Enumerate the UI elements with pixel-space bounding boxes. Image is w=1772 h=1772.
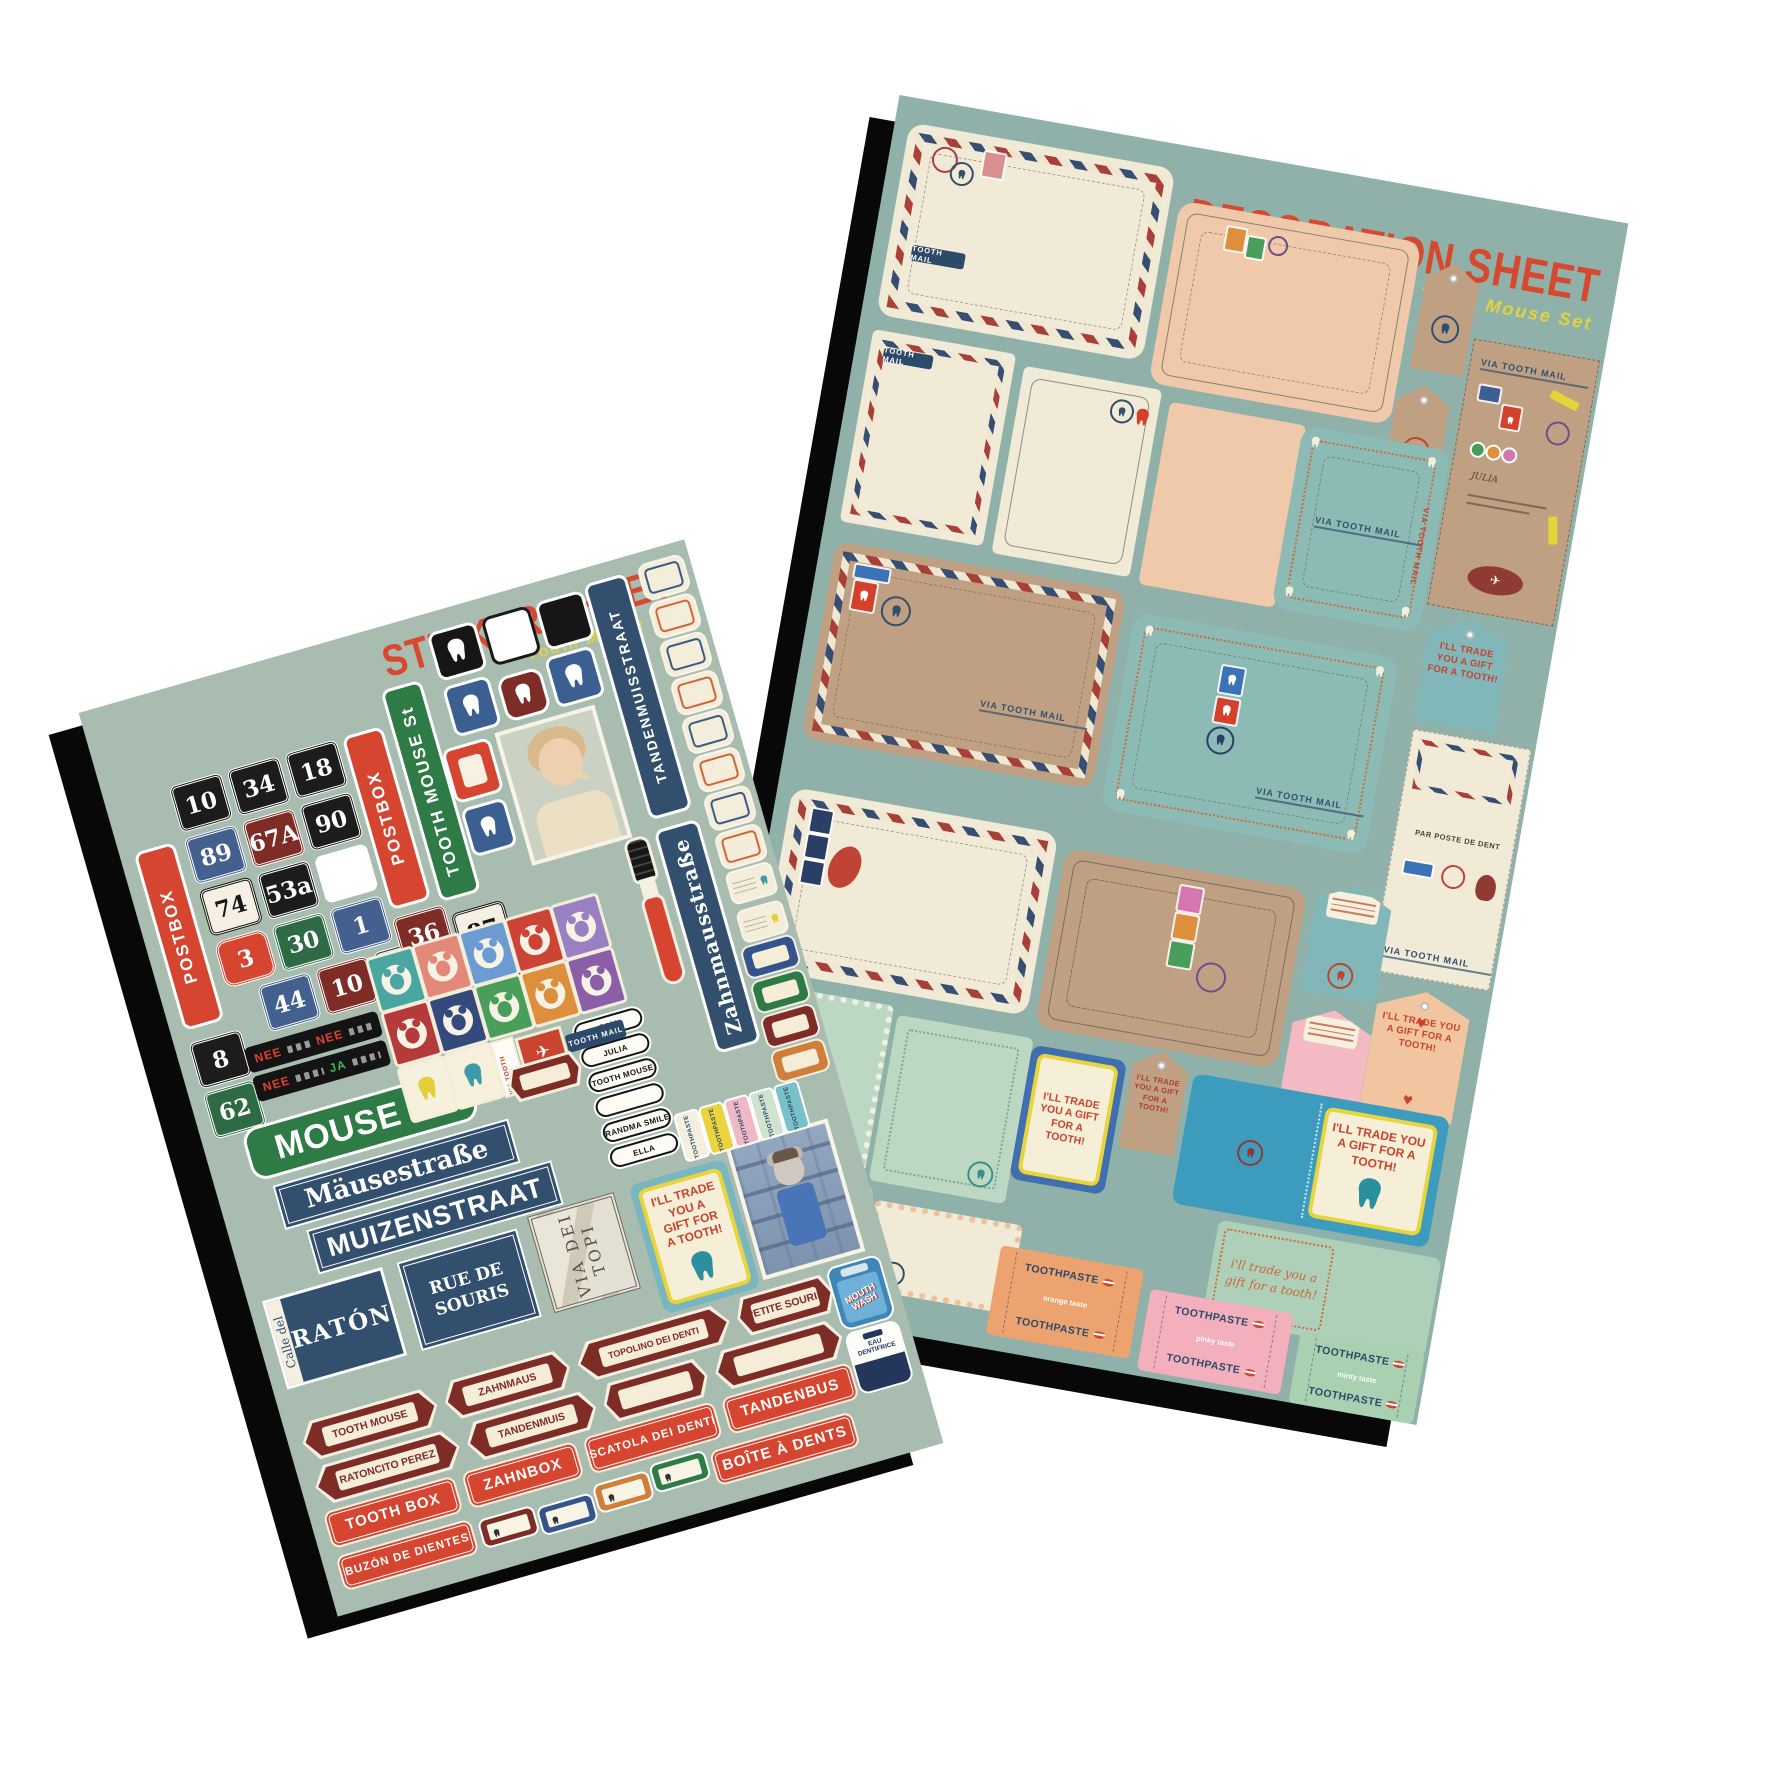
house-number-label: 67A [246, 818, 301, 858]
mouse-face [424, 948, 461, 985]
house-number-sticker: 30 [271, 911, 336, 972]
mouthwash-label: MOUTH WASH [836, 1271, 889, 1324]
tooth-corner-mark [1397, 605, 1413, 621]
dash-decoration [351, 1051, 381, 1066]
letter-paper [991, 366, 1162, 577]
square-stamp [1177, 886, 1203, 913]
lips-icon [1393, 1360, 1406, 1369]
house-number-sticker: 34 [226, 756, 291, 817]
dash-decoration [286, 1040, 311, 1053]
street-sign-via-dei-topi: VIA DEI TOPI [527, 1192, 641, 1313]
square-stamp [982, 152, 1006, 179]
house-number-sticker: 3 [213, 928, 278, 989]
house-number-sticker: 53a [256, 860, 321, 921]
house-number-label: 44 [270, 985, 308, 1020]
house-number-sticker: 74 [198, 876, 263, 937]
tooth-icon [1307, 434, 1323, 450]
heart-icon [1402, 1094, 1414, 1106]
tooth-corner-mark [1424, 455, 1440, 471]
tooth-corner-mark [1112, 787, 1128, 803]
vertical-sign-label: POSTBOX [364, 769, 410, 868]
oval-tag-window: TOOTH MOUSE [321, 1402, 419, 1447]
baby-dress [532, 786, 622, 861]
color-dot-sticker [1502, 448, 1516, 462]
toothpaste-flavor: minty taste [1316, 1366, 1398, 1389]
house-number-label: 74 [212, 889, 250, 924]
house-number-sticker: 18 [284, 739, 349, 800]
tooth-square-sticker [495, 666, 552, 723]
red-label-text: ZAHNBOX [482, 1456, 564, 1494]
address-name: JULIA [1470, 471, 1499, 486]
tooth-icon [409, 1071, 446, 1108]
tooth-icon [455, 1058, 492, 1095]
product-mockup-canvas: STICKER SHEET Tooth Mouse Set POSTBOXPOS… [0, 0, 1772, 1772]
tooth-icon [439, 633, 476, 670]
yellow-label-chip [1549, 390, 1580, 412]
oval-tag-window: PETITE SOURIS [750, 1287, 820, 1324]
flavor-label: minty taste [1336, 1370, 1377, 1386]
tooth-corner-mark [1372, 664, 1388, 680]
house-number-label: 1 [350, 910, 373, 940]
street-sign-rue-de-souris: RUE DE SOURIS [396, 1228, 542, 1351]
name-plate-label: JULIA [602, 1042, 629, 1058]
label-lines [732, 876, 757, 894]
toothpaste-row: TOOTHPASTE [1169, 1303, 1271, 1332]
round-postmark-stamp [1429, 313, 1461, 345]
house-number-label: 10 [182, 785, 220, 820]
kraft-envelope-template [1035, 847, 1308, 1069]
tooth-icon [757, 872, 772, 887]
tooth-icon [680, 1244, 727, 1291]
blank-label-sticker [704, 786, 756, 831]
strip-right-label: NEE [314, 1027, 344, 1048]
trade-card-text: I'LL TRADE YOU A GIFT FOR A TOOTH! [1033, 1090, 1103, 1150]
oval-tag-window: TANDENMUIS [485, 1404, 579, 1448]
toothpaste-label: TOOTHPASTE [1174, 1304, 1250, 1329]
mint-dotted-paper [869, 1015, 1034, 1204]
trade-tag-text: I'LL TRADE YOU A GIFT FOR A TOOTH! [1421, 638, 1508, 687]
tooth-icon [1345, 1172, 1391, 1218]
lips-icon [1102, 1278, 1115, 1287]
house-number-sticker: 10 [169, 772, 234, 833]
trade-tag-text: I'LL TRADE YOU A GIFT FOR A TOOTH! [1125, 1071, 1187, 1118]
sticker-sheet: STICKER SHEET Tooth Mouse Set POSTBOXPOS… [79, 539, 944, 1616]
tooth-corner-mark [1307, 434, 1323, 450]
round-postmark-stamp [1439, 863, 1467, 891]
square-stamp [1168, 941, 1194, 968]
round-postmark-stamp [1325, 961, 1355, 991]
teal-trade-tag: I'LL TRADE YOU A GIFT FOR A TOOTH! [1413, 613, 1513, 734]
toothpaste-label: TOOTHPASTE [1307, 1385, 1383, 1410]
mouse-face [563, 908, 600, 945]
oval-tag-label: TANDENMUIS [497, 1411, 566, 1440]
tooth-icon [473, 811, 505, 843]
toothpaste-strip-label: TOOTHPASTE [708, 1107, 726, 1151]
square-stamp [1403, 860, 1433, 877]
mouse-face [516, 921, 553, 958]
tooth-icon [455, 689, 490, 724]
trade-card-inner: I'LL TRADE YOU A GIFT FOR A TOOTH! [1017, 1053, 1119, 1187]
toothpaste-label: TOOTHPASTE [1315, 1344, 1391, 1369]
cream-box-template: PAR POSTE DE DENTVIA TOOTH MAIL [1371, 729, 1532, 991]
red-label-text: TOOTH BOX [344, 1491, 442, 1533]
lined-label-sticker [737, 901, 788, 942]
house-number-sticker: 89 [183, 824, 248, 885]
strip-right-label: JA [328, 1057, 349, 1075]
square-stamp [1172, 914, 1198, 941]
toothpaste-row: TOOTHPASTE [1319, 1344, 1402, 1370]
blank-label-sticker [693, 747, 745, 792]
house-number-label: 90 [312, 804, 350, 839]
colored-tag-window [771, 1014, 809, 1039]
lined-label-sticker [726, 863, 777, 904]
flavor-label: pinky taste [1195, 1334, 1235, 1350]
house-number-label: 8 [209, 1044, 232, 1074]
blank-label-sticker [682, 709, 734, 754]
feather-stamp [1474, 873, 1498, 902]
mini-tag-window [602, 1479, 646, 1505]
blank-label-sticker [715, 824, 767, 869]
mouse-apron [775, 1181, 828, 1247]
tooth-icon [549, 1512, 561, 1524]
tooth-icon [887, 603, 904, 620]
toothpaste-strip-label: TOOTHPASTE [733, 1100, 751, 1144]
square-stamp [1225, 227, 1247, 252]
tooth-corner-mark [1343, 828, 1359, 844]
par-poste-text: PAR POSTE DE DENT [1405, 827, 1508, 868]
toothpaste-strip-label: TOOTHPASTE [783, 1086, 801, 1130]
par-poste-label: PAR POSTE DE DENT [1414, 828, 1501, 852]
tooth-icon [1112, 787, 1128, 803]
street-sign-raton: Calle delRATÓN [262, 1267, 408, 1390]
mouse-face [486, 989, 523, 1026]
house-number-label: 62 [216, 1092, 254, 1127]
toothpaste-label: TOOTHPASTE [1015, 1315, 1091, 1340]
color-dot-sticker [1487, 446, 1501, 460]
label-lines [743, 915, 768, 933]
oval-tag-body [507, 1053, 583, 1101]
red-tooth-sticker [1129, 405, 1154, 430]
house-number-label: 3 [234, 943, 257, 973]
tooth-icon [508, 679, 540, 711]
via-tooth-mail-stamp: VIA TOOTH MAIL [1382, 944, 1493, 977]
decoration-sheet-shadow-wrap: DECORATION SHEET Tooth Mouse Set TOOTH M… [788, 150, 1528, 1370]
mini-tag-window [658, 1459, 702, 1485]
round-postmark-stamp [1235, 1138, 1265, 1168]
toothpaste-row: TOOTHPASTE [1160, 1351, 1262, 1380]
tooth-icon [1437, 321, 1453, 337]
house-number-label: 53a [262, 871, 315, 910]
toothpaste-flavor: pinky taste [1165, 1329, 1266, 1355]
tooth-icon [1129, 405, 1154, 430]
kraft-box-template: VIA TOOTH MAILJULIA✈ [1427, 338, 1600, 626]
mouthwash-text: MOUTH WASH [839, 1279, 885, 1316]
lips-icon [1243, 1368, 1256, 1377]
teal-envelope-template-large: VIA TOOTH MAIL [1101, 612, 1400, 855]
tooth-icon [1224, 673, 1240, 689]
tooth-icon [662, 1469, 674, 1481]
house-number-sticker: 67A [241, 808, 306, 869]
square-stamp [1219, 666, 1245, 695]
square-stamp [1246, 237, 1265, 259]
tooth-icon [1372, 664, 1388, 680]
oval-tag-window: ZAHNMAUS [462, 1363, 553, 1406]
trade-tag-text: I'LL TRADE YOU A GIFT FOR A TOOTH! [1370, 1009, 1469, 1060]
house-number-label: 34 [240, 769, 278, 804]
tooth-icon [1333, 968, 1348, 983]
peach-trade-tag: I'LL TRADE YOU A GIFT FOR A TOOTH! [1359, 984, 1473, 1124]
dash-decoration [348, 1022, 373, 1035]
house-number-label: 89 [197, 837, 235, 872]
oval-tag-body: TOPOLINO DEI DENTI [576, 1306, 731, 1381]
mouse-face [532, 975, 569, 1012]
oval-tag-label: ZAHNMAUS [477, 1372, 538, 1399]
mini-tooth-tag-sticker [594, 1472, 653, 1512]
tooth-icon [1424, 455, 1440, 471]
mouthwash-bottle-sticker: MOUTH WASH [827, 1256, 894, 1330]
toothpaste-label: TOOTHPASTE [1024, 1262, 1100, 1287]
house-number-label: 10 [328, 968, 366, 1003]
mini-tooth-tag-sticker [479, 1507, 538, 1547]
tooth-icon [1281, 584, 1297, 600]
mouse-face [578, 962, 615, 999]
teal-envelope-template: VIA TOOTH MAILVIA TOOTH MAIL [1271, 425, 1451, 633]
house-number-label: 30 [284, 925, 322, 960]
oval-tag-window [732, 1333, 824, 1376]
toothpaste-strip-label: TOOTHPASTE [758, 1093, 776, 1137]
tooth-icon [490, 1524, 502, 1536]
tooth-icon [955, 167, 969, 181]
red-label-text: TANDENBUS [739, 1377, 841, 1420]
tag-label-window [1302, 1014, 1360, 1050]
trade-card-lower-text: i'll trade you a gift for a tooth! [1217, 1253, 1327, 1306]
toothpaste-label: TOOTHPASTE [1165, 1352, 1241, 1377]
tooth-square-sticker [442, 675, 502, 738]
oval-tag-label: RATONCITO PEREZ [338, 1448, 436, 1485]
strip-left-label: NEE [253, 1045, 283, 1066]
colored-tag-window [781, 1048, 819, 1073]
street-sign-label: VIA DEI TOPI [553, 1203, 615, 1302]
kraft-airmail-envelope-template: VIA TOOTH MAIL [801, 541, 1126, 789]
house-number-sticker: 44 [257, 972, 322, 1033]
airplane-oval-stamp: ✈ [1465, 562, 1525, 599]
tooth-icon [1243, 1145, 1258, 1160]
trade-card-text: I'LL TRADE YOU A GIFT FOR A TOOTH! [1324, 1120, 1428, 1180]
colored-tag-sticker [771, 1039, 829, 1082]
street-sign-label: RUE DE SOURIS [425, 1257, 514, 1322]
street-sign-raton-main: RATÓN [280, 1271, 404, 1382]
square-stamp [1479, 385, 1501, 402]
flavor-label: orange taste [1042, 1294, 1087, 1311]
tooth-icon [768, 911, 783, 926]
tooth-icon [1115, 404, 1129, 418]
mouse-face [393, 1015, 430, 1052]
house-number-sticker [314, 843, 379, 904]
teal-lined-tag [1300, 880, 1394, 1003]
mini-tag-window [546, 1501, 590, 1527]
tooth-icon [1218, 703, 1234, 719]
mini-tooth-tag-sticker [538, 1494, 597, 1534]
tooth-icon [856, 588, 872, 604]
toothpaste-strip-label: TOOTHPASTE [683, 1114, 701, 1158]
airmail-letter-paper: TOOTH MAIL [840, 329, 1017, 546]
trade-card-inner: I'LL TRADE YOU A GIFT FOR A TOOTH! [637, 1167, 753, 1306]
name-plate-label: ELLA [632, 1143, 656, 1158]
mouse-face-stamp [568, 950, 625, 1012]
tooth-icon [556, 658, 593, 695]
toothpaste-flavor: orange taste [1014, 1289, 1115, 1315]
lips-icon [1385, 1401, 1398, 1410]
dash-decoration [294, 1067, 324, 1082]
lips-icon [1093, 1331, 1106, 1340]
lips-icon [1252, 1320, 1265, 1329]
round-postmark-stamp [1544, 420, 1572, 448]
oval-tag-label: TOPOLINO DEI DENTI [607, 1326, 700, 1361]
colored-tag-window [751, 944, 789, 969]
tooth-icon [973, 1167, 988, 1182]
trade-card-panel: I'LL TRADE YOU A GIFT FOR A TOOTH! [1307, 1106, 1439, 1236]
mouse-face [470, 935, 507, 972]
house-number-label: 18 [297, 752, 335, 787]
colored-tag-window [761, 979, 799, 1004]
blank-label-sticker [671, 670, 723, 715]
blank-label-sticker [660, 632, 712, 677]
color-dot-sticker [1471, 443, 1485, 457]
sticker-sheet-shadow-wrap: STICKER SHEET Tooth Mouse Set POSTBOXPOS… [196, 608, 826, 1548]
tooth-icon [1141, 623, 1157, 639]
airplane-icon: ✈ [1488, 572, 1502, 590]
house-number-sticker: 1 [329, 895, 394, 956]
airmail-envelope-template: TOOTH MAIL [876, 122, 1176, 361]
oval-tag-label: PETITE SOURIS [750, 1289, 820, 1321]
tooth-icon [605, 1489, 617, 1501]
tooth-corner-mark [1141, 623, 1157, 639]
street-sign-label: RATÓN [288, 1299, 395, 1354]
mouse-face [378, 961, 415, 998]
eau-dentifrice-bottle-sticker: EAU DENTIFRICE [846, 1321, 913, 1393]
mini-tag-window [487, 1514, 531, 1540]
strip-left-label: NEE [261, 1073, 291, 1094]
toothpaste-row: TOOTHPASTE [1019, 1261, 1121, 1290]
eau-dentifrice-text: EAU DENTIFRICE [849, 1332, 903, 1361]
toothpaste-box-template: TOOTHPASTEorange tasteTOOTHPASTE [986, 1245, 1144, 1359]
dotted-frame [883, 1029, 1020, 1191]
trade-card-text: I'LL TRADE YOU A GIFT FOR A TOOTH! [649, 1179, 728, 1253]
tooth-icon [1505, 412, 1517, 424]
tooth-icon [1212, 732, 1228, 748]
square-stamp [1500, 406, 1522, 431]
oval-tag-window [618, 1371, 694, 1410]
toothpaste-row: TOOTHPASTE [1312, 1385, 1395, 1411]
tag-label-window [1326, 890, 1381, 925]
mouse-face-stamp [553, 896, 610, 958]
via-tooth-mail-stamp: VIA TOOTH MAIL [1479, 357, 1590, 390]
mouse-face [440, 1002, 477, 1039]
toothbrush-head [626, 838, 656, 882]
mini-tooth-tag-sticker [651, 1452, 710, 1492]
tooth-corner-mark [1281, 584, 1297, 600]
oval-tag-window [518, 1062, 571, 1092]
vertical-sign-label: POSTBOX [156, 887, 202, 986]
toothpaste-row: TOOTHPASTE [1010, 1314, 1112, 1343]
house-number-sticker: 90 [299, 791, 364, 852]
oval-tag-label: TOOTH MOUSE [331, 1408, 409, 1440]
tooth-icon [1343, 828, 1359, 844]
tooth-icon [1397, 605, 1413, 621]
box-frame-strip [1412, 739, 1519, 806]
kraft-trade-tag: I'LL TRADE YOU A GIFT FOR A TOOTH! [1118, 1047, 1191, 1157]
yellow-label-chip [1548, 517, 1557, 545]
square-stamp [1214, 697, 1240, 724]
